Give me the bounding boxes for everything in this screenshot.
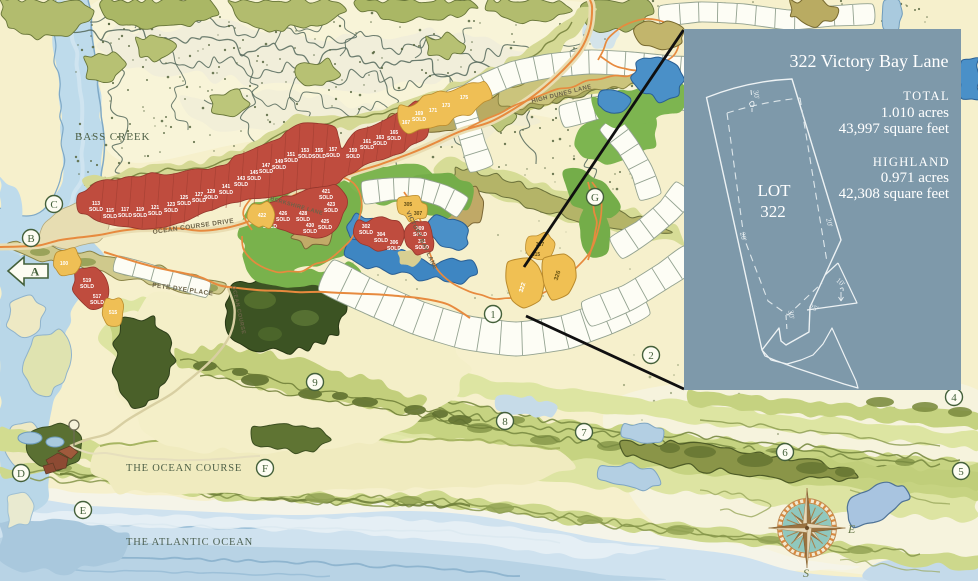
svg-text:SOLD: SOLD [89, 207, 103, 213]
svg-text:SOLD: SOLD [219, 190, 233, 196]
svg-text:SOLD: SOLD [412, 117, 426, 123]
svg-text:SOLD: SOLD [118, 213, 132, 219]
svg-text:SOLD: SOLD [373, 141, 387, 147]
svg-text:SOLD: SOLD [326, 153, 340, 159]
svg-text:SOLD: SOLD [204, 195, 218, 201]
svg-text:SOLD: SOLD [312, 154, 326, 160]
svg-text:B: B [27, 233, 34, 245]
svg-text:8: 8 [502, 416, 508, 428]
svg-text:SOLD: SOLD [80, 284, 94, 290]
svg-text:SOLD: SOLD [164, 208, 178, 214]
svg-text:D: D [17, 468, 25, 480]
svg-text:4: 4 [951, 392, 957, 404]
svg-text:9: 9 [312, 377, 318, 389]
svg-text:S: S [803, 566, 809, 580]
svg-text:C: C [50, 199, 57, 211]
svg-text:100: 100 [60, 261, 69, 267]
svg-text:SOLD: SOLD [303, 229, 317, 235]
svg-text:SOLD: SOLD [359, 230, 373, 236]
svg-text:171: 171 [429, 108, 438, 114]
svg-text:SOLD: SOLD [148, 211, 162, 217]
svg-text:SOLD: SOLD [319, 195, 333, 201]
svg-text:1: 1 [490, 309, 496, 321]
svg-text:422: 422 [258, 213, 267, 219]
svg-text:E: E [80, 505, 87, 517]
svg-text:F: F [262, 463, 268, 475]
svg-text:42,308 square feet: 42,308 square feet [839, 186, 950, 202]
svg-text:5: 5 [958, 466, 964, 478]
svg-text:43,997 square feet: 43,997 square feet [839, 121, 950, 137]
svg-text:173: 173 [442, 103, 451, 109]
svg-text:SOLD: SOLD [133, 213, 147, 219]
svg-text:SOLD: SOLD [177, 201, 191, 207]
svg-text:SOLD: SOLD [387, 136, 401, 142]
svg-text:THE ATLANTIC OCEAN: THE ATLANTIC OCEAN [126, 537, 253, 548]
svg-text:322 Victory Bay Lane: 322 Victory Bay Lane [789, 51, 948, 71]
svg-text:2: 2 [648, 350, 654, 362]
svg-text:167: 167 [402, 120, 411, 126]
svg-text:SOLD: SOLD [247, 176, 261, 182]
svg-text:0.971 acres: 0.971 acres [881, 170, 949, 186]
svg-text:1.010 acres: 1.010 acres [881, 105, 949, 121]
svg-text:SOLD: SOLD [387, 246, 401, 252]
svg-text:307: 307 [414, 211, 423, 217]
svg-text:A: A [31, 265, 40, 279]
svg-text:6: 6 [782, 447, 788, 459]
svg-text:THE OCEAN COURSE: THE OCEAN COURSE [126, 463, 242, 474]
svg-text:SOLD: SOLD [276, 217, 290, 223]
svg-text:175: 175 [460, 95, 469, 101]
svg-text:SOLD: SOLD [272, 165, 286, 171]
svg-text:G: G [591, 192, 599, 204]
svg-text:SOLD: SOLD [284, 158, 298, 164]
svg-text:LOT: LOT [757, 181, 791, 200]
svg-text:322: 322 [760, 202, 786, 221]
svg-text:305: 305 [404, 202, 413, 208]
svg-text:BASS CREEK: BASS CREEK [75, 131, 150, 143]
svg-text:7: 7 [581, 427, 587, 439]
svg-text:SOLD: SOLD [90, 300, 104, 306]
svg-text:515: 515 [109, 310, 118, 316]
svg-text:SOLD: SOLD [103, 214, 117, 220]
svg-text:SOLD: SOLD [298, 154, 312, 160]
svg-text:SOLD: SOLD [346, 154, 360, 160]
svg-text:SOLD: SOLD [374, 238, 388, 244]
svg-text:HIGHLAND: HIGHLAND [873, 155, 950, 169]
svg-text:SOLD: SOLD [318, 225, 332, 231]
svg-text:SOLD: SOLD [234, 182, 248, 188]
svg-text:E: E [847, 522, 856, 536]
svg-text:SOLD: SOLD [324, 208, 338, 214]
svg-text:TOTAL: TOTAL [903, 89, 950, 103]
